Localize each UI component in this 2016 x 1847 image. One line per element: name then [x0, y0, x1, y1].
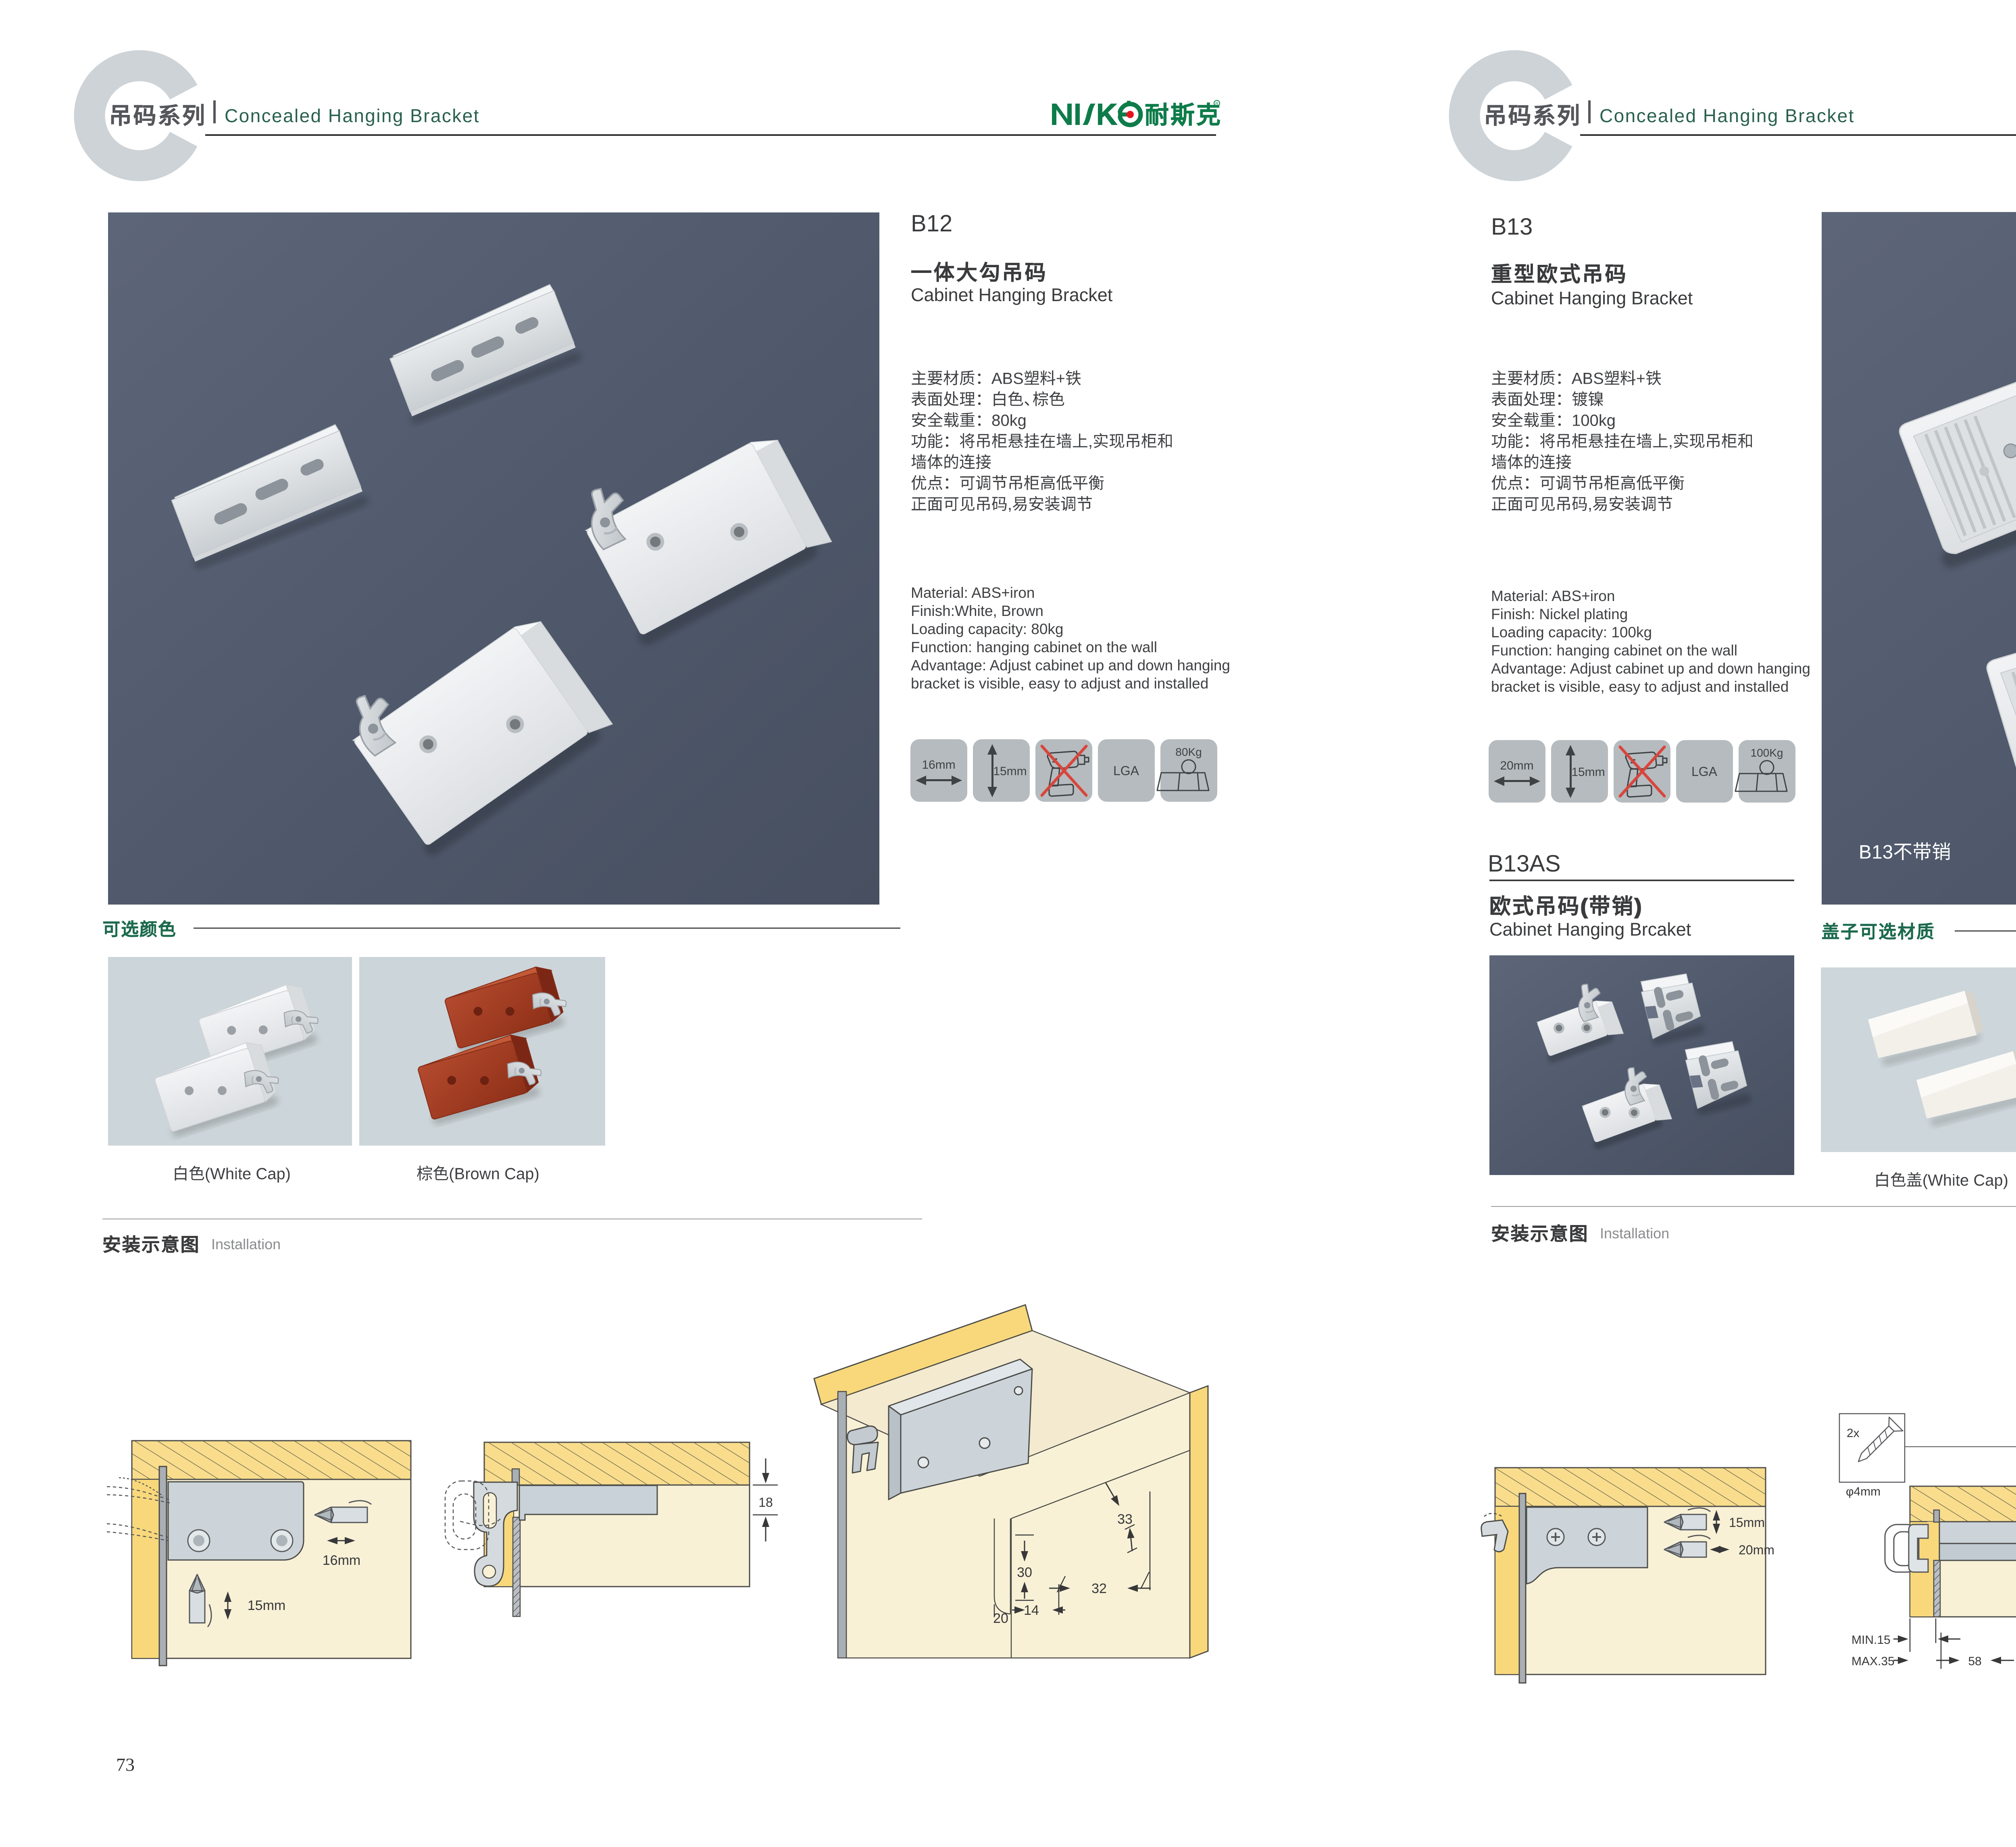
svg-text:LGA: LGA [1691, 764, 1718, 779]
svg-text:20mm: 20mm [1739, 1543, 1774, 1557]
svg-text:MAX.35: MAX.35 [1851, 1655, 1895, 1668]
svg-text:R: R [1215, 102, 1218, 106]
svg-text:15mm: 15mm [1729, 1515, 1765, 1530]
svg-text:15mm: 15mm [993, 765, 1027, 778]
svg-text:30: 30 [1017, 1565, 1032, 1580]
svg-text:MIN.15: MIN.15 [1851, 1633, 1891, 1647]
svg-text:φ4mm: φ4mm [1846, 1485, 1881, 1498]
svg-text:15mm: 15mm [248, 1598, 285, 1613]
svg-text:33: 33 [1117, 1512, 1133, 1527]
svg-text:100Kg: 100Kg [1751, 747, 1783, 759]
svg-text:16mm: 16mm [323, 1553, 360, 1568]
svg-text:2x: 2x [1847, 1427, 1860, 1440]
svg-text:18: 18 [758, 1495, 773, 1510]
svg-text:16mm: 16mm [922, 758, 955, 772]
svg-text:14: 14 [1024, 1603, 1039, 1618]
svg-text:58: 58 [1968, 1655, 1981, 1668]
svg-text:LGA: LGA [1113, 763, 1139, 778]
svg-text:20mm: 20mm [1500, 759, 1533, 772]
svg-text:80Kg: 80Kg [1175, 746, 1202, 758]
svg-text:15mm: 15mm [1571, 765, 1605, 779]
svg-text:20: 20 [993, 1611, 1008, 1626]
svg-text:32: 32 [1091, 1581, 1107, 1596]
